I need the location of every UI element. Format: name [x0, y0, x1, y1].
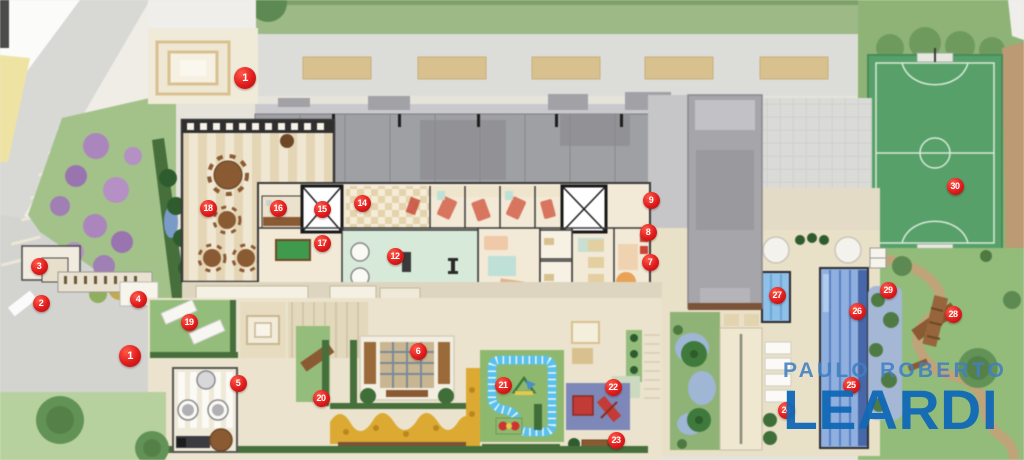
palm-garden [670, 312, 720, 450]
elevator [302, 186, 342, 232]
sports-area [858, 0, 1024, 258]
top-street [170, 0, 862, 102]
umbrella [835, 237, 861, 263]
dropoff-plaza [148, 0, 258, 104]
spring-toy [496, 418, 522, 434]
soccer-field [868, 48, 1002, 253]
ground-floor-plan [258, 183, 650, 292]
billiard-table [276, 240, 310, 260]
elevator [562, 186, 606, 232]
second-building [688, 95, 762, 310]
umbrella [763, 237, 789, 263]
kids-pool [762, 272, 790, 322]
playground [480, 350, 564, 450]
brand-watermark: PAULO ROBERTO LEARDI [783, 360, 1023, 440]
solarium-deck [720, 314, 762, 450]
site-plan-image[interactable]: 1234156789121415161718192021222324252627… [0, 0, 1024, 460]
bbq-area [173, 368, 237, 452]
brand-name-top: PAULO ROBERTO [783, 360, 1023, 381]
top-lawn [256, 0, 862, 34]
bottom-left-lawn [0, 392, 169, 460]
patio [762, 98, 872, 190]
brand-name-main: LEARDI [783, 383, 1023, 439]
toddler-play-area [566, 376, 640, 430]
bottom-hedge [168, 446, 648, 453]
pergola [360, 336, 454, 404]
